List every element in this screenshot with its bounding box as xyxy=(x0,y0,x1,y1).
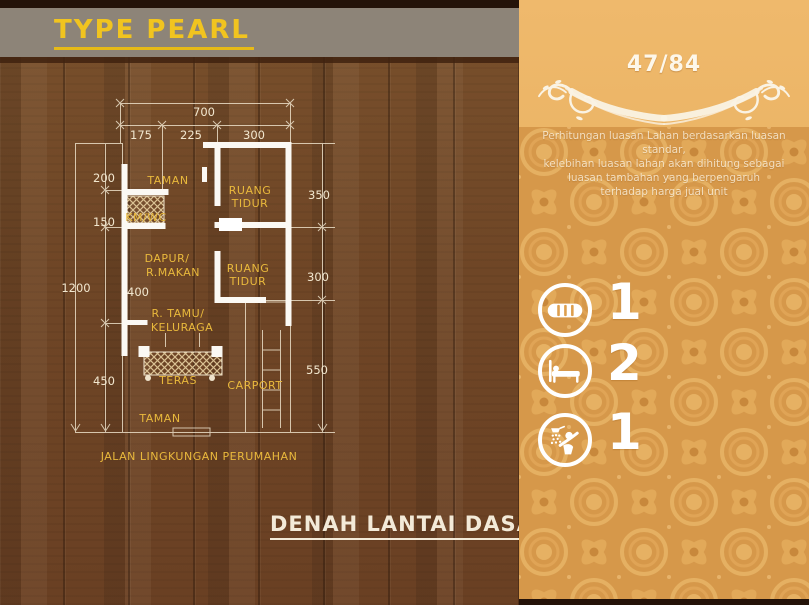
label-bedroom1-1: RUANG xyxy=(229,184,271,197)
feature-bedrooms: 2 xyxy=(519,344,809,400)
description-line: kelebihan luasan lahan akan dihitung seb… xyxy=(525,157,803,171)
dim-top-total: 700 xyxy=(193,105,215,119)
info-panel: 47/84 Perhitungan luasan Lahan berdasark… xyxy=(519,0,809,605)
bedroom-count: 2 xyxy=(607,334,667,392)
caption-title: DENAH LANTAI DASAR xyxy=(270,512,551,540)
label-living-1: R. TAMU/ xyxy=(152,307,205,320)
label-carport: CARPORT xyxy=(227,379,282,392)
street-label: JALAN LINGKUNGAN PERUMAHAN xyxy=(100,450,298,463)
dim-left-4: 450 xyxy=(93,374,115,388)
dim-right-1: 350 xyxy=(308,188,330,202)
bottom-edge-strip xyxy=(519,599,809,605)
car-icon xyxy=(538,283,592,337)
title-banner: TYPE PEARL xyxy=(0,8,519,57)
bed-icon xyxy=(538,344,592,398)
label-bedroom2-1: RUANG xyxy=(227,262,269,275)
dim-left-3: 400 xyxy=(127,285,149,299)
slide: TYPE PEARL xyxy=(0,0,809,605)
flourish-ornament xyxy=(532,76,796,126)
banner-shadow xyxy=(0,57,519,63)
dim-right-2: 300 xyxy=(307,270,329,284)
terrace-column-dot xyxy=(145,375,151,381)
label-bedroom1-2: TIDUR xyxy=(231,197,269,210)
dim-left-1: 200 xyxy=(93,171,115,185)
page-title: TYPE PEARL xyxy=(54,15,254,50)
description-text: Perhitungan luasan Lahan berdasarkan lua… xyxy=(525,129,803,199)
top-edge-strip xyxy=(0,0,519,8)
dim-left-2: 150 xyxy=(93,215,115,229)
dim-top-left: 175 xyxy=(130,128,152,142)
label-living-2: KELURAGA xyxy=(151,321,213,334)
description-line: luasan tambahan yang berpengaruh xyxy=(525,171,803,185)
carport-count: 1 xyxy=(607,273,667,331)
shower-icon xyxy=(538,413,592,467)
dim-top-mid: 225 xyxy=(180,128,202,142)
label-kitchen-2: R.MAKAN xyxy=(146,266,200,279)
bathroom-count: 1 xyxy=(607,403,667,461)
label-bathroom: KM/WC xyxy=(125,211,166,224)
description-line: Perhitungan luasan Lahan berdasarkan lua… xyxy=(525,129,803,157)
floor-plan: 700 175 225 300 200 150 1200 400 450 350… xyxy=(40,90,345,470)
label-terrace: TERAS xyxy=(158,374,197,387)
label-kitchen-1: DAPUR/ xyxy=(145,252,190,265)
terrace-column-dot xyxy=(209,375,215,381)
room-labels: TAMAN RUANG TIDUR KM/WC DAPUR/ R.MAKAN R… xyxy=(100,174,298,463)
label-bedroom2-2: TIDUR xyxy=(229,275,267,288)
description-line: terhadap harga jual unit xyxy=(525,185,803,199)
label-garden-front: TAMAN xyxy=(146,174,188,187)
dim-right-3: 550 xyxy=(306,363,328,377)
label-garden-back: TAMAN xyxy=(138,412,180,425)
feature-bathrooms: 1 xyxy=(519,413,809,469)
dim-top-right: 300 xyxy=(243,128,265,142)
lot-size: 47/84 xyxy=(519,52,809,77)
dim-left-total: 1200 xyxy=(61,281,90,295)
feature-carport: 1 xyxy=(519,283,809,339)
